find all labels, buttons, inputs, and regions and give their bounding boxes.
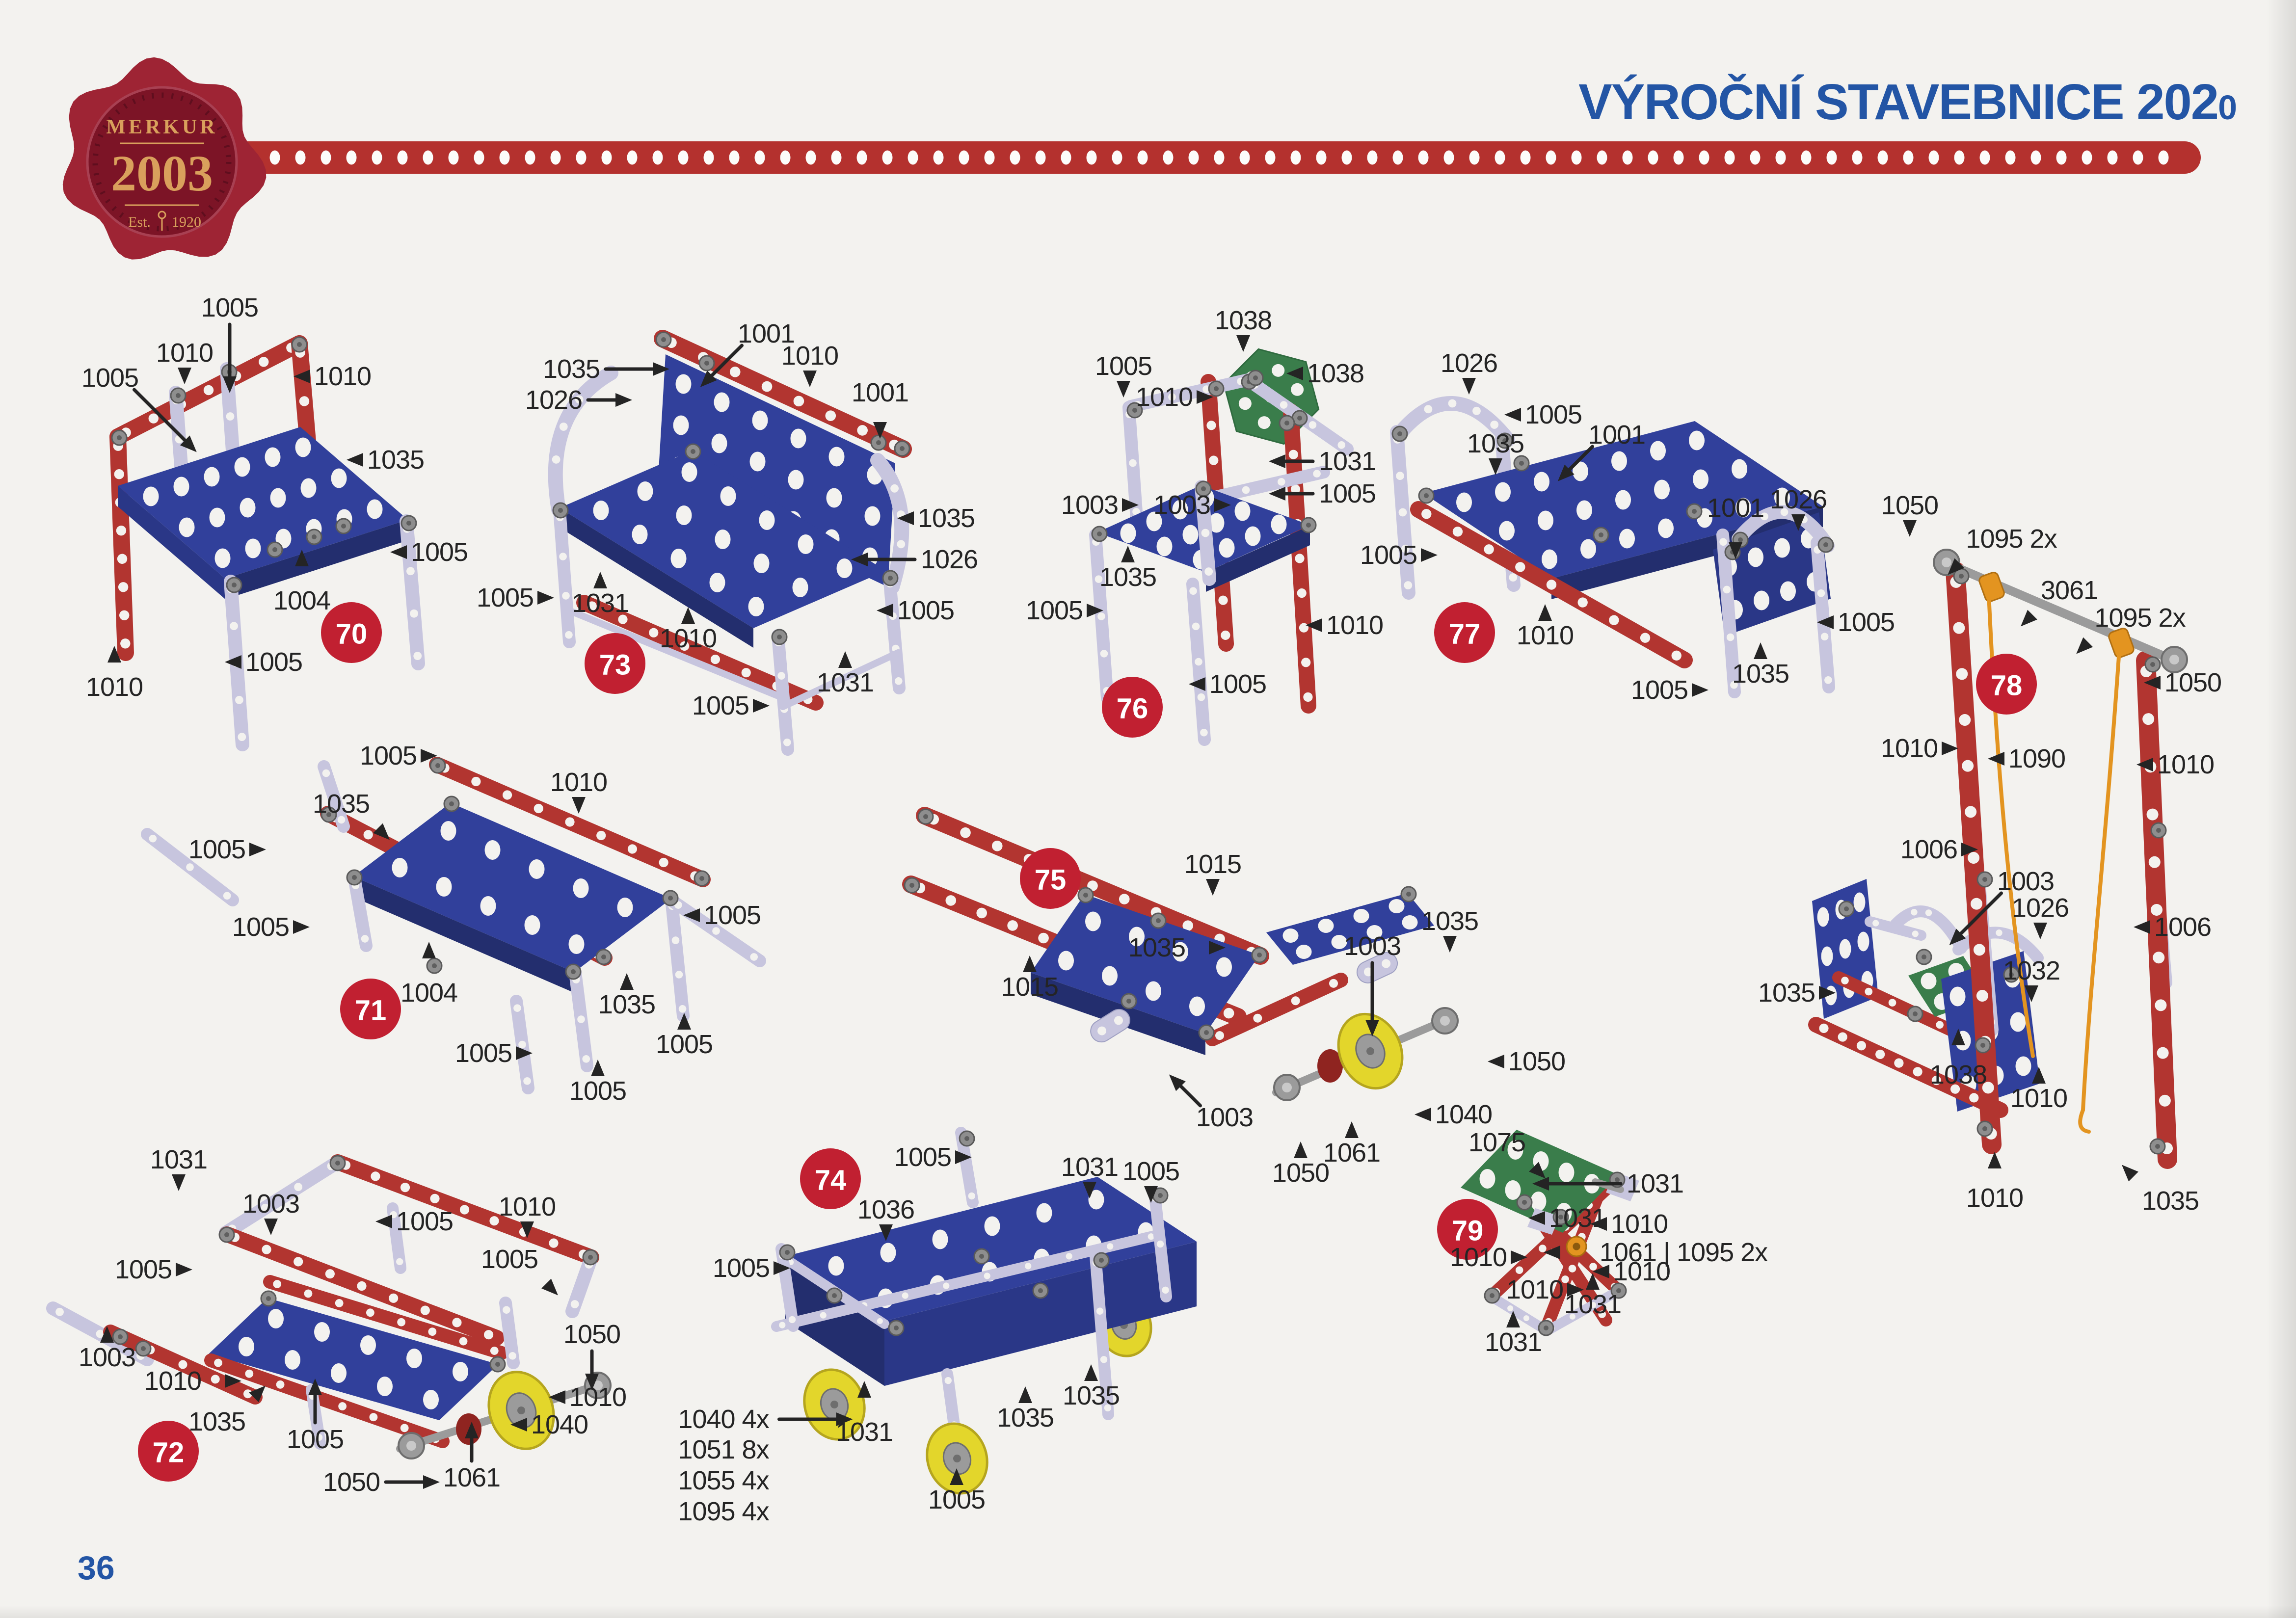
part-label: 1010 (144, 1366, 201, 1396)
part-bolt (1839, 902, 1854, 916)
part-label-group: 1035 (1099, 546, 1156, 592)
label-arrowhead-icon (1903, 520, 1917, 537)
part-bolt (566, 964, 581, 979)
part-bolt (583, 1250, 598, 1265)
strip-hole (1393, 151, 1403, 165)
model-part (312, 534, 317, 539)
part-label: 1010 (314, 362, 371, 391)
strip-hole (449, 151, 459, 165)
model-part (1472, 407, 1481, 415)
part-label: 1010 (781, 341, 838, 371)
part-label: 1003 (1061, 490, 1118, 520)
model-part (1921, 973, 1937, 989)
strip-hole (525, 151, 535, 165)
strip-hole (2108, 151, 2118, 165)
label-arrowhead-icon (1269, 454, 1285, 468)
model-part (1531, 1192, 1547, 1211)
label-arrowhead-icon (1538, 604, 1552, 621)
model-part (1282, 1083, 1292, 1092)
part-bolt (1517, 1195, 1532, 1210)
part-label-group: 1026 (525, 385, 632, 415)
model-part (699, 876, 704, 881)
part-label: 1005 (1122, 1157, 1179, 1186)
strip-hole (474, 151, 484, 165)
model-part (2169, 655, 2179, 664)
model-part (1402, 915, 1418, 929)
strip-hole (653, 151, 663, 165)
part-label: 1040 (1435, 1100, 1492, 1129)
model-badge: 73 (585, 633, 645, 694)
part-label: 1005 (704, 901, 761, 930)
part-label: 1035 (1421, 906, 1478, 936)
strip-hole (729, 151, 740, 165)
part-bolt (1209, 381, 1224, 396)
part-label-group: 1031 (1269, 447, 1376, 476)
model-part (888, 576, 893, 581)
model-part (301, 478, 317, 498)
strip-hole (295, 151, 306, 165)
part-label: 1032 (2003, 956, 2060, 985)
part-bolt (2150, 1139, 2165, 1154)
strip-hole (602, 151, 612, 165)
part-bolt (292, 337, 307, 352)
strip-hole (1163, 151, 1174, 165)
part-label-group: 1050 (563, 1320, 620, 1390)
part-bolt (227, 578, 241, 592)
strip-hole (321, 151, 331, 165)
part-label-group: 1035 (1421, 906, 1478, 953)
part-label: 1005 (455, 1038, 512, 1068)
model-part (1748, 548, 1763, 567)
part-label: 1026 (1441, 348, 1497, 378)
model-part (668, 896, 673, 901)
part-label: 1005 (115, 1255, 172, 1284)
model-part (118, 427, 408, 579)
model-part (933, 1230, 948, 1249)
part-label: 1005 (287, 1425, 344, 1454)
strip-hole (831, 151, 842, 165)
model-part (1296, 945, 1312, 959)
model-part (1544, 1326, 1548, 1330)
strip-hole (1572, 151, 1582, 165)
part-bolt (1687, 504, 1702, 519)
model-part (1996, 929, 2002, 936)
part-label: 1001 (1707, 493, 1764, 523)
strip-hole (500, 151, 510, 165)
model-part (204, 467, 220, 487)
strip-hole (1418, 151, 1429, 165)
model-part (141, 1346, 146, 1351)
badge-number: 77 (1449, 618, 1481, 650)
part-bolt (889, 1321, 904, 1335)
part-bolt (974, 1249, 989, 1264)
part-label-group: 1010 (550, 768, 607, 814)
part-label: 1050 (1272, 1158, 1329, 1188)
model-part (174, 477, 189, 497)
model-part (1982, 1126, 1987, 1131)
part-label: 1010 (1517, 621, 1574, 650)
model-part (1538, 511, 1553, 530)
model-part (1980, 1043, 1985, 1048)
label-arrowhead-icon (375, 1215, 392, 1228)
part-label: 1005 (360, 741, 417, 770)
model-part (1559, 1163, 1575, 1182)
model-70: 70100510101005101010351005100410051010 (81, 293, 468, 752)
part-bolt (1092, 527, 1107, 541)
model-part (1156, 918, 1161, 923)
model-badge: 74 (800, 1148, 861, 1209)
strip-hole (1903, 151, 1914, 165)
part-label-group: 1005 (477, 583, 554, 612)
page-number: 36 (78, 1549, 115, 1587)
seal-brand: MERKUR (106, 116, 217, 138)
part-label: 1010 (1881, 734, 1938, 763)
part-label-group: 1010 (1517, 604, 1574, 650)
part-label: 1031 (836, 1417, 893, 1447)
model-part (2155, 1144, 2160, 1149)
model-part (1913, 1011, 1918, 1016)
part-label: 1010 (1506, 1275, 1563, 1304)
part-strip (882, 570, 906, 695)
strip-hole (1010, 151, 1020, 165)
model-part (682, 462, 697, 482)
part-label: 1035 (313, 789, 370, 819)
part-label-group: 1031 (572, 572, 629, 618)
model-part (1297, 416, 1302, 421)
model-part (1844, 906, 1849, 911)
part-label: 1050 (563, 1320, 620, 1349)
model-part (1689, 431, 1705, 451)
model-part (265, 448, 281, 467)
model-part (1291, 383, 1304, 396)
model-part (360, 1335, 376, 1355)
model-76: 7610381038100510101031100510031003103510… (1026, 306, 1383, 746)
model-part (1658, 519, 1674, 538)
label-arrowhead-icon (877, 604, 893, 617)
part-label-group: 1035 (1732, 642, 1789, 689)
model-part (865, 506, 881, 526)
label-arrowhead-icon (1018, 1386, 1032, 1403)
model-part (1448, 399, 1457, 408)
model-part (485, 840, 501, 860)
model-part (406, 1349, 422, 1368)
strip-hole (1521, 151, 1531, 165)
catalog-canvas: MERKUR 2003 Est. 1920 VÝROČNÍ STAVEBNICE… (0, 0, 2296, 1618)
part-label-group: 1035 (997, 1386, 1054, 1432)
model-part (588, 1255, 593, 1260)
part-label: 1038 (1307, 359, 1364, 388)
part-bolt (663, 891, 678, 905)
part-label: 1005 (188, 835, 245, 864)
strip-hole (1316, 151, 1327, 165)
model-part (1505, 1180, 1521, 1200)
part-label: 1005 (81, 363, 138, 393)
part-label: 1015 (1001, 972, 1058, 1002)
part-label: 1005 (477, 583, 534, 612)
part-label: 1005 (1838, 608, 1895, 637)
part-bolt (336, 519, 351, 533)
model-part (721, 486, 736, 506)
model-part (1738, 537, 1743, 542)
label-arrowhead-icon (593, 572, 607, 588)
label-arrowhead-icon (264, 1219, 278, 1235)
model-part (785, 1250, 790, 1255)
part-coupling (1432, 1008, 1458, 1034)
part-strip (109, 428, 134, 661)
model-part (1925, 909, 1932, 916)
strip-hole (985, 151, 995, 165)
part-bolt (780, 1245, 795, 1260)
part-label: 1035 (1732, 659, 1789, 689)
label-arrowhead-icon (249, 843, 266, 856)
part-label-group: 1061 (1323, 1121, 1380, 1167)
model-part (890, 484, 899, 493)
part-bolt (330, 1156, 345, 1170)
strip-hole (704, 151, 714, 165)
label-arrowhead-icon (1488, 1055, 1504, 1068)
part-label-group: 1050 (1881, 491, 1938, 537)
catalog-page: MERKUR 2003 Est. 1920 VÝROČNÍ STAVEBNICE… (0, 0, 2296, 1618)
strip-hole (1061, 151, 1071, 165)
part-label-group: 1005 (656, 1013, 713, 1059)
model-73: 7310351026100110101001103510261005103110… (477, 319, 978, 756)
part-label: 1010 (550, 768, 607, 797)
label-arrowhead-icon (1462, 378, 1476, 395)
model-part (392, 858, 408, 877)
model-part (436, 877, 452, 897)
model-part (435, 763, 440, 768)
model-part (714, 393, 730, 412)
part-bolt (2151, 823, 2166, 838)
model-part (1126, 999, 1131, 1004)
part-strip (2136, 650, 2178, 1169)
part-label-group: 1050 (1488, 1047, 1565, 1076)
part-label: 1003 (242, 1189, 299, 1219)
strip-hole (1623, 151, 1633, 165)
part-wheel (1327, 1004, 1414, 1099)
label-arrowhead-icon (572, 797, 586, 814)
label-arrowhead-icon (838, 651, 852, 668)
part-label: 1050 (323, 1467, 380, 1497)
part-label-group: 1035 (598, 973, 655, 1019)
part-label-group: 1005 (1504, 400, 1582, 429)
model-part (1318, 919, 1334, 933)
part-label: 1005 (1095, 351, 1152, 381)
part-bolt (1280, 416, 1294, 430)
part-coupling (1274, 1075, 1300, 1100)
part-bolt (1594, 528, 1608, 542)
model-part (827, 488, 842, 508)
part-label: 1001 (1588, 420, 1645, 450)
model-part (1085, 912, 1101, 931)
model-part (1258, 416, 1271, 429)
model-part (1693, 470, 1709, 489)
part-label: 1061 (443, 1463, 500, 1492)
part-label-group: 1010 (86, 646, 143, 702)
model-part (777, 635, 782, 639)
part-label: 1005 (411, 537, 468, 567)
model-part (759, 510, 775, 530)
part-label: 1010 (1450, 1243, 1507, 1272)
model-part (441, 821, 456, 841)
part-strip (327, 1152, 601, 1267)
model-badge: 76 (1102, 677, 1163, 738)
model-part (748, 597, 764, 616)
model-part (882, 570, 906, 695)
part-bolt (686, 444, 700, 459)
strip-hole (1138, 151, 1148, 165)
part-bolt (112, 430, 127, 445)
model-part (481, 896, 496, 916)
model-part (1519, 461, 1524, 466)
model-part (754, 554, 770, 573)
part-strip (568, 965, 594, 1073)
model-part (525, 915, 540, 935)
label-arrowhead-icon (176, 1263, 192, 1276)
model-part (897, 540, 905, 548)
strip-hole (1929, 151, 1939, 165)
model-part (1083, 893, 1088, 898)
model-part (1982, 877, 1987, 882)
model-part (143, 487, 159, 506)
strip-hole (1801, 151, 1812, 165)
label-arrowhead-icon (541, 1279, 558, 1296)
part-bolt (895, 441, 909, 456)
part-bolt (1977, 872, 1992, 887)
part-bolt (1078, 888, 1093, 902)
part-bolt (113, 1329, 128, 1344)
strip-hole (1342, 151, 1352, 165)
strip-hole (270, 151, 280, 165)
label-arrowhead-icon (1121, 546, 1135, 562)
part-bolt (1094, 1253, 1109, 1268)
model-part (2150, 662, 2155, 667)
model-part (671, 549, 687, 568)
model-part (1424, 405, 1433, 413)
label-arrowhead-icon (1236, 335, 1250, 352)
label-arrowhead-icon (803, 371, 817, 387)
model-part (750, 452, 766, 472)
strip-hole (1367, 151, 1378, 165)
model-part (923, 814, 928, 819)
model-part (224, 1232, 229, 1237)
part-bolt (430, 758, 445, 773)
part-strip (1282, 403, 1317, 714)
part-label: 1035 (2142, 1186, 2199, 1216)
part-label-group: 1050 (323, 1467, 440, 1497)
part-label: 1035 (1128, 933, 1185, 962)
strip-hole (2082, 151, 2092, 165)
part-label: 1031 (1319, 447, 1376, 476)
model-part (1499, 521, 1515, 541)
strip-hole (1878, 151, 1888, 165)
model-part (1840, 939, 1851, 959)
model-part (1858, 932, 1869, 952)
part-bolt (1121, 994, 1136, 1008)
part-plate (118, 427, 408, 579)
part-label: 1061 (1323, 1138, 1380, 1167)
model-part (1534, 472, 1549, 492)
label-arrowhead-icon (2122, 1165, 2138, 1181)
part-label: 1005 (692, 691, 749, 720)
part-bushing (1567, 1237, 1586, 1256)
part-label: 1005 (894, 1142, 951, 1172)
model-part (1611, 451, 1627, 471)
part-bolt (1199, 1025, 1214, 1040)
label-arrowhead-icon (1692, 683, 1709, 697)
badge-number: 73 (599, 649, 631, 681)
model-badge: 77 (1434, 602, 1495, 663)
part-bolt (1392, 426, 1407, 441)
model-part (1158, 1193, 1163, 1198)
part-label: 1010 (2010, 1084, 2067, 1113)
badge-number: 75 (1035, 864, 1067, 896)
part-label: 1010 (1966, 1183, 2023, 1213)
model-part (1257, 953, 1262, 957)
model-part (1306, 523, 1311, 528)
model-part (900, 446, 905, 451)
model-part (1216, 957, 1232, 977)
part-bolt (427, 958, 442, 973)
strip-hole (1648, 151, 1658, 165)
label-arrowhead-icon (1294, 1141, 1308, 1158)
model-part (117, 435, 122, 440)
strip-hole (1699, 151, 1709, 165)
part-bolt (699, 356, 714, 371)
part-label-group: 1005 (232, 912, 310, 942)
part-label-group: 1095 4x (678, 1497, 769, 1526)
page-edge-shadow-bottom (0, 1605, 2296, 1618)
strip-hole (2031, 151, 2041, 165)
strip-hole (1980, 151, 1990, 165)
model-part (569, 934, 585, 954)
model-part (1440, 1016, 1450, 1026)
part-label: 1005 (569, 1076, 626, 1106)
part-label: 1035 (188, 1407, 245, 1436)
part-bolt (347, 870, 362, 885)
part-label: 1004 (400, 978, 457, 1008)
label-arrowhead-icon (1443, 936, 1457, 953)
part-label-group: 1010 (781, 341, 838, 387)
model-part (909, 883, 914, 888)
strip-hole (2159, 151, 2169, 165)
seal-year: 2003 (111, 145, 213, 202)
strip-hole (959, 151, 969, 165)
part-label: 1003 (79, 1343, 135, 1372)
part-label-group: 1005 (1360, 540, 1438, 570)
part-label-group: 1031 (817, 651, 874, 697)
model-part (1615, 490, 1631, 510)
part-label-group: 1005 (1026, 596, 1103, 625)
model-74: 74100510311005103610051040 4x1051 8x1055… (678, 1126, 1197, 1526)
strip-hole (1750, 151, 1761, 165)
model-part (1214, 386, 1219, 391)
label-arrowhead-icon (178, 368, 191, 384)
part-bolt (883, 571, 898, 585)
header-strip (211, 141, 2201, 174)
strip-hole (1546, 151, 1556, 165)
model-part (1542, 550, 1557, 569)
seal-est-year: 1920 (172, 214, 201, 230)
model-part (673, 416, 689, 435)
part-label: 1010 (660, 624, 717, 653)
model-part (1456, 493, 1472, 512)
model-part (331, 1363, 347, 1383)
label-arrowhead-icon (620, 973, 634, 990)
model-part (235, 457, 250, 477)
part-label: 1095 2x (1966, 524, 2057, 554)
part-label-group: 1010 (1966, 1152, 2023, 1213)
